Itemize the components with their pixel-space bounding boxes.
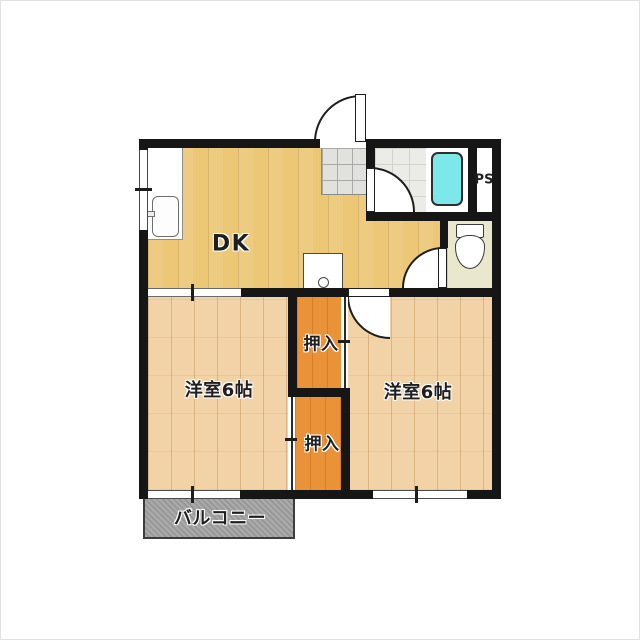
toilet-door-leaf <box>438 248 447 288</box>
floorplan-canvas: DK 洋室6帖 洋室6帖 押入 押入 バルコニー PS <box>0 0 640 640</box>
wall-toilet-left <box>440 221 448 248</box>
door-swings <box>0 0 640 640</box>
label-closet-upper: 押入 <box>304 330 339 355</box>
wall-closet-left <box>288 288 297 397</box>
label-bedroom-right: 洋室6帖 <box>384 378 453 404</box>
bedroom-right-window <box>373 490 467 499</box>
closet-upper-sliding-door-tick <box>338 340 350 343</box>
label-dining-kitchen: DK <box>212 232 250 257</box>
bedroom-left-window-tick <box>191 486 194 503</box>
bedroom-left-window <box>148 490 240 499</box>
label-closet-lower: 押入 <box>305 430 340 455</box>
entrance-door-leaf <box>355 94 366 142</box>
bedroom-right-window-tick <box>415 486 418 503</box>
closet-lower-sliding-door-line <box>291 397 293 490</box>
wall-closet-right <box>341 388 350 490</box>
kitchen-window-tick <box>135 188 152 191</box>
label-balcony: バルコニー <box>174 504 266 530</box>
bedroom-right-door-leaf <box>348 288 390 297</box>
wall-right <box>492 139 501 499</box>
wall-bathroom-bottom <box>366 212 501 221</box>
bathroom-door-leaf <box>366 168 375 212</box>
label-pipe-space: PS <box>475 173 494 188</box>
wall-dk-bedrooms-right <box>390 288 501 297</box>
label-bedroom-left: 洋室6帖 <box>185 376 254 402</box>
bedroom-left-sliding-door <box>148 288 241 297</box>
wall-bathroom-left <box>366 148 375 168</box>
closet-lower-sliding-door-tick <box>285 438 297 441</box>
bedroom-left-sliding-door-tick <box>191 284 194 301</box>
